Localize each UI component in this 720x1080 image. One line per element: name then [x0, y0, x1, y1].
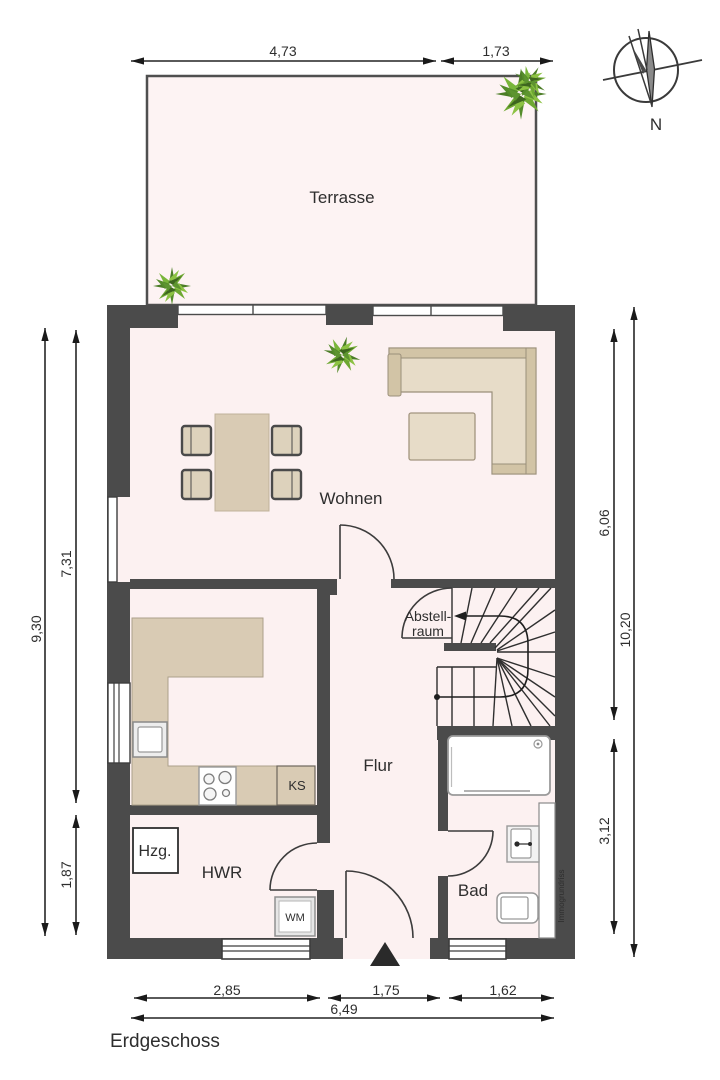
svg-text:Bad: Bad — [458, 881, 488, 900]
svg-text:9,30: 9,30 — [28, 615, 44, 642]
svg-text:Wohnen: Wohnen — [319, 489, 382, 508]
svg-text:N: N — [650, 115, 662, 134]
svg-text:Immogrundriss: Immogrundriss — [557, 870, 566, 923]
svg-text:6,06: 6,06 — [596, 509, 612, 536]
svg-text:1,62: 1,62 — [489, 982, 516, 998]
svg-text:KS: KS — [288, 778, 306, 793]
svg-text:1,75: 1,75 — [372, 982, 399, 998]
svg-text:Abstell-: Abstell- — [405, 608, 452, 624]
svg-text:7,31: 7,31 — [58, 550, 74, 577]
svg-text:6,49: 6,49 — [330, 1001, 357, 1017]
svg-text:3,12: 3,12 — [596, 817, 612, 844]
svg-text:10,20: 10,20 — [617, 612, 633, 647]
svg-text:4,73: 4,73 — [269, 43, 296, 59]
svg-text:Flur: Flur — [363, 756, 393, 775]
svg-text:raum: raum — [412, 623, 444, 639]
svg-text:HWR: HWR — [202, 863, 243, 882]
svg-text:Hzg.: Hzg. — [139, 843, 172, 860]
svg-text:Terrasse: Terrasse — [309, 188, 374, 207]
svg-text:2,85: 2,85 — [213, 982, 240, 998]
svg-text:Erdgeschoss: Erdgeschoss — [110, 1031, 220, 1052]
svg-text:1,73: 1,73 — [482, 43, 509, 59]
svg-text:1,87: 1,87 — [58, 861, 74, 888]
svg-text:WM: WM — [285, 912, 305, 924]
